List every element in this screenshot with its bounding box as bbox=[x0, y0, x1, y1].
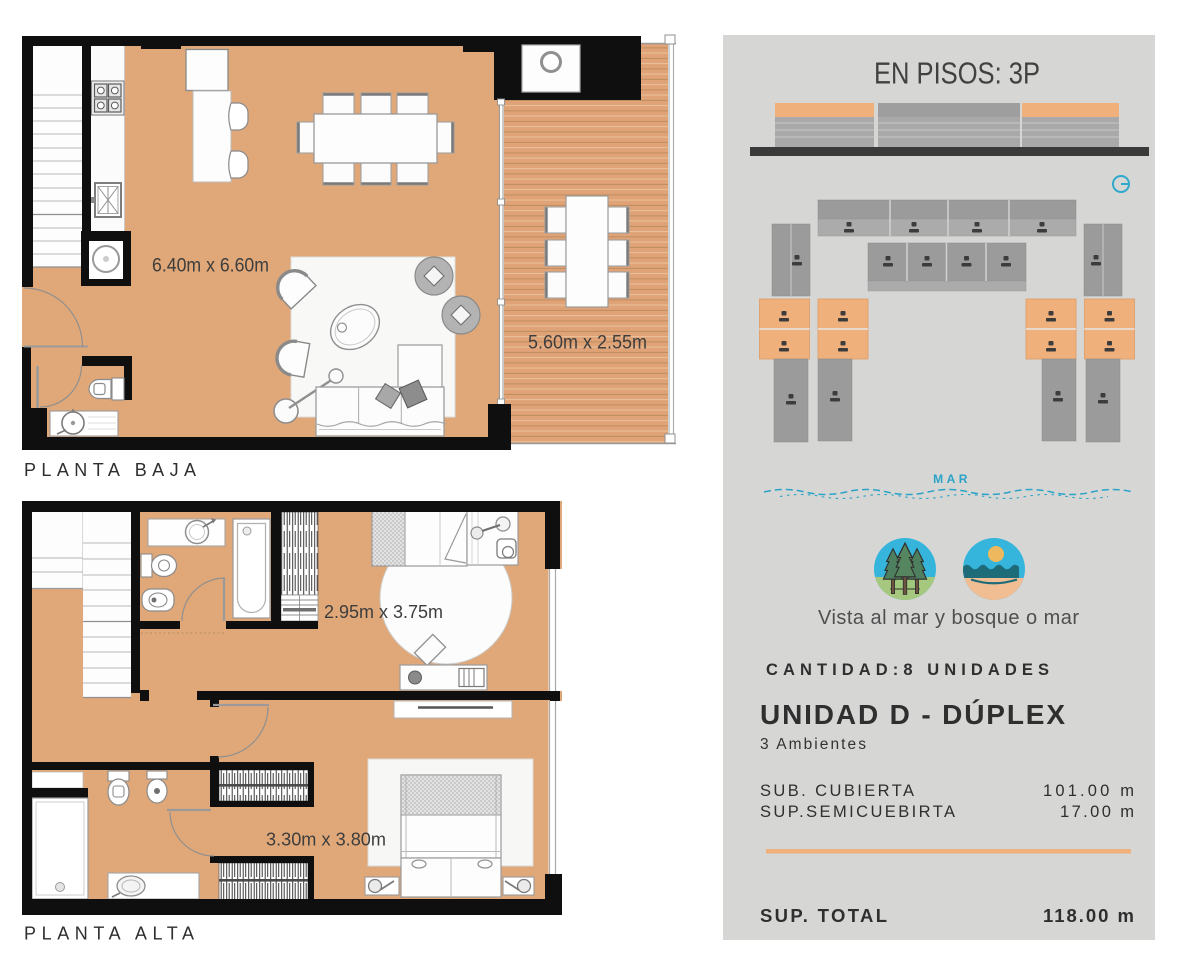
svg-text:PLANTA BAJA: PLANTA BAJA bbox=[24, 460, 196, 480]
svg-text:3.30m x 3.80m: 3.30m x 3.80m bbox=[266, 829, 386, 850]
svg-text:17.00 m: 17.00 m bbox=[1060, 803, 1134, 821]
svg-text:5.60m x 2.55m: 5.60m x 2.55m bbox=[528, 332, 647, 354]
svg-text:EN PISOS: 3P: EN PISOS: 3P bbox=[874, 56, 1040, 91]
svg-text:101.00 m: 101.00 m bbox=[1043, 782, 1134, 800]
svg-text:2.95m x 3.75m: 2.95m x 3.75m bbox=[324, 601, 443, 622]
svg-text:SUP. TOTAL: SUP. TOTAL bbox=[760, 905, 887, 926]
svg-text:6.40m x 6.60m: 6.40m x 6.60m bbox=[152, 255, 269, 277]
svg-text:MAR: MAR bbox=[933, 472, 971, 486]
svg-text:UNIDAD D - DÚPLEX: UNIDAD D - DÚPLEX bbox=[760, 699, 1065, 730]
svg-text:SUB. CUBIERTA: SUB. CUBIERTA bbox=[760, 782, 914, 800]
svg-text:CANTIDAD:8 UNIDADES: CANTIDAD:8 UNIDADES bbox=[766, 661, 1049, 679]
svg-text:SUP.SEMICUEBIRTA: SUP.SEMICUEBIRTA bbox=[760, 803, 955, 821]
svg-text:PLANTA ALTA: PLANTA ALTA bbox=[24, 924, 194, 944]
svg-text:118.00 m: 118.00 m bbox=[1043, 905, 1134, 926]
svg-text:Vista al mar y bosque o mar: Vista al mar y bosque o mar bbox=[818, 607, 1079, 629]
